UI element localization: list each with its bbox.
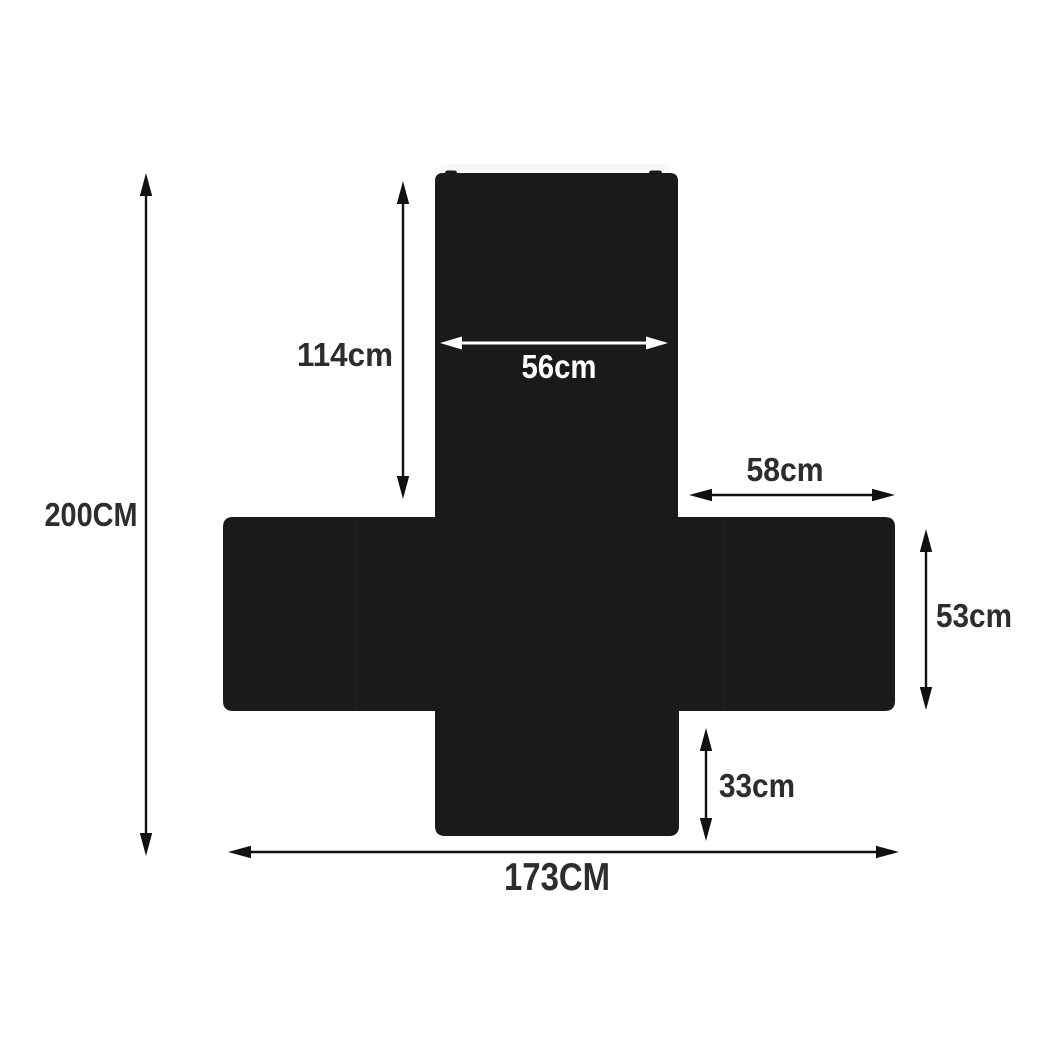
svg-text:58cm: 58cm [747, 451, 824, 488]
svg-text:173CM: 173CM [504, 856, 610, 899]
svg-text:53cm: 53cm [936, 597, 1012, 634]
svg-text:56cm: 56cm [522, 348, 597, 385]
svg-text:114cm: 114cm [297, 336, 393, 373]
svg-text:33cm: 33cm [719, 767, 795, 804]
svg-text:200CM: 200CM [45, 496, 138, 533]
